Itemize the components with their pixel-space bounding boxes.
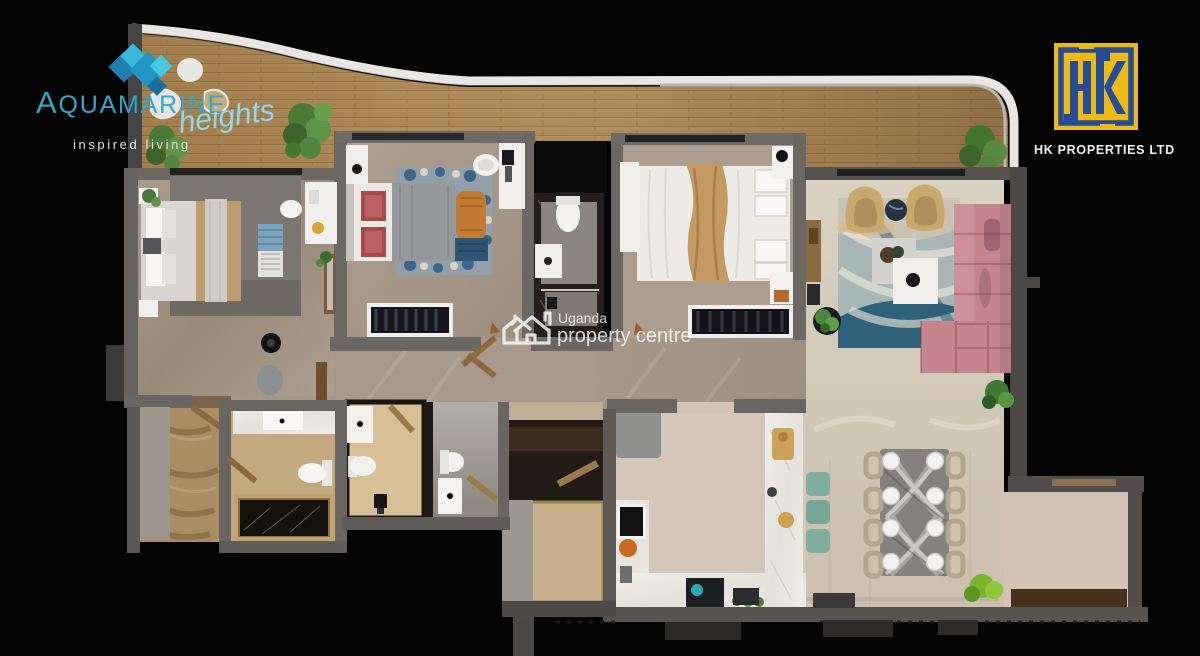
svg-text:HK PROPERTIES LTD: HK PROPERTIES LTD xyxy=(1034,143,1175,157)
svg-text:property centre: property centre xyxy=(557,325,692,347)
svg-text:inspired living: inspired living xyxy=(73,137,191,152)
svg-text:Uganda: Uganda xyxy=(558,310,607,326)
